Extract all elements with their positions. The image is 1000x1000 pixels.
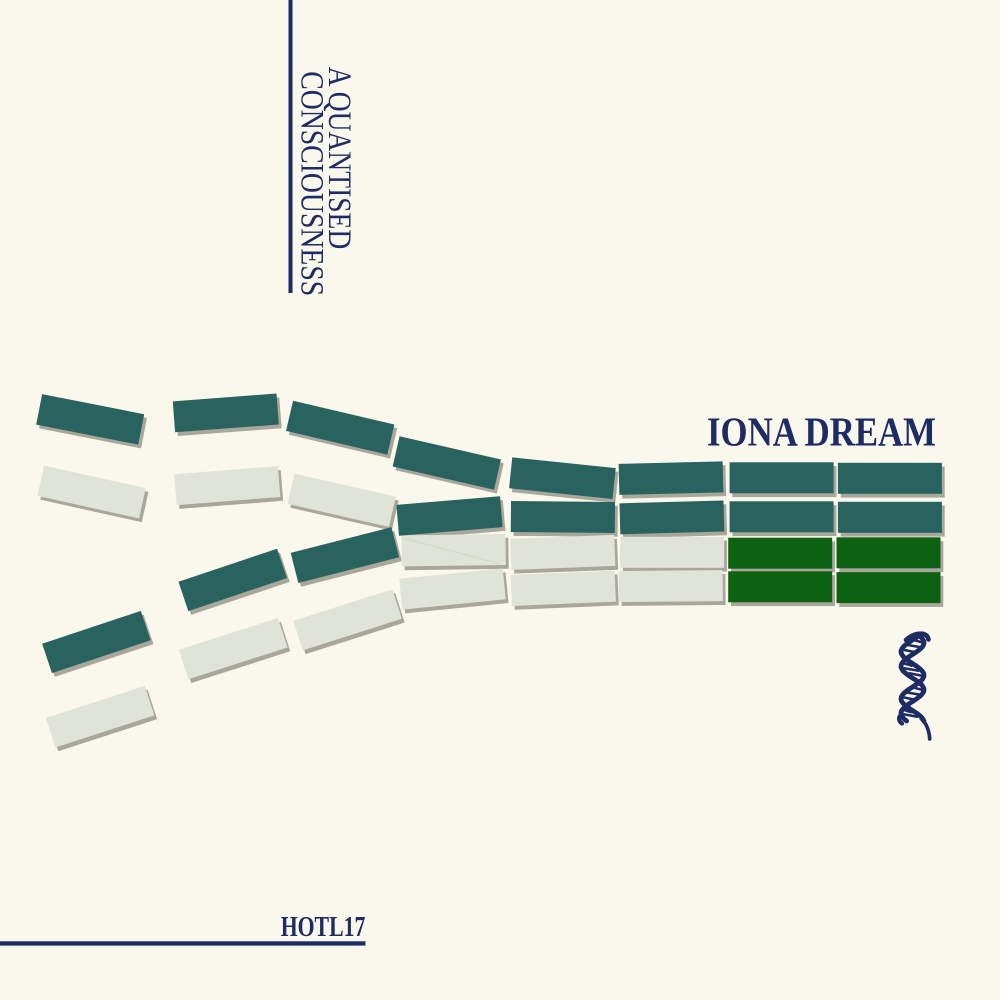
svg-text:IONA DREAM: IONA DREAM: [707, 409, 936, 455]
svg-text:CONSCIOUSNESS: CONSCIOUSNESS: [293, 71, 329, 296]
svg-text:HOTL17: HOTL17: [281, 912, 366, 943]
